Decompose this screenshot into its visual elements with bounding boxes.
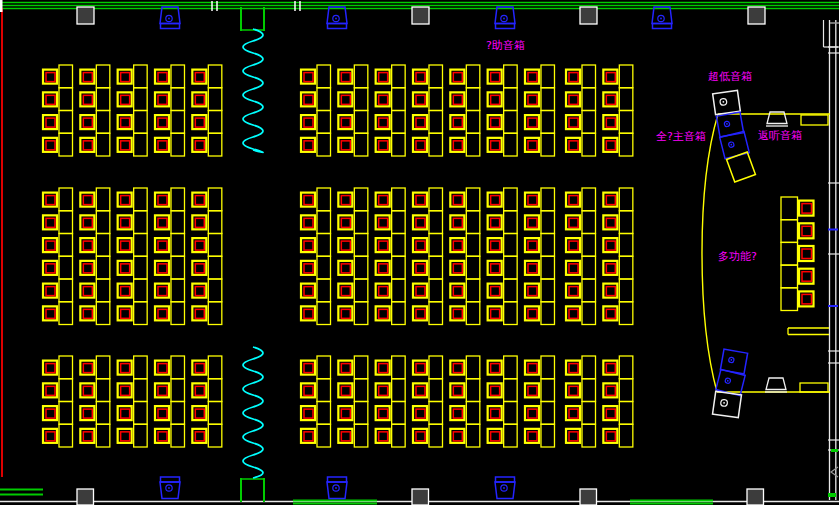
chair-seat (569, 386, 578, 395)
chair-seat (491, 241, 500, 250)
desk (171, 302, 185, 325)
wall-speaker-icon (160, 477, 180, 499)
chair-seat (46, 364, 55, 373)
desk (208, 188, 222, 211)
desk (208, 88, 222, 111)
chair-seat (528, 118, 537, 127)
chair-seat (416, 309, 425, 318)
chair-seat (379, 364, 388, 373)
speaker-driver-dot (503, 18, 505, 20)
desk (781, 265, 798, 288)
speaker-driver-dot (335, 487, 337, 489)
desk (96, 302, 110, 325)
desk (619, 65, 633, 88)
desk (619, 234, 633, 257)
desk (541, 234, 555, 257)
chair-seat (341, 141, 350, 150)
chair-seat (83, 309, 92, 318)
chair-seat (606, 95, 615, 104)
desk (582, 211, 596, 234)
chair-seat (83, 196, 92, 205)
chair-seat (379, 196, 388, 205)
chair-seat (491, 364, 500, 373)
desk (134, 211, 148, 234)
chair-seat (195, 264, 204, 273)
desk (541, 256, 555, 279)
chair-seat (416, 73, 425, 82)
desk (504, 133, 518, 156)
structural-column (747, 489, 764, 505)
desk (59, 88, 73, 111)
wall-speaker-icon (327, 477, 347, 499)
seat-block-top-center (301, 65, 554, 156)
chair-seat (83, 95, 92, 104)
chair-seat (528, 73, 537, 82)
chair-seat (491, 409, 500, 418)
chair-seat (416, 196, 425, 205)
chair-seat (121, 73, 130, 82)
desk (134, 65, 148, 88)
chair-seat (46, 264, 55, 273)
desk (171, 88, 185, 111)
chair-seat (158, 196, 167, 205)
chair-seat (606, 118, 615, 127)
desk (354, 234, 368, 257)
desk (541, 65, 555, 88)
chair-seat (416, 218, 425, 227)
seat-block-top-right (566, 65, 633, 156)
chair-seat (453, 264, 462, 273)
chair-seat (453, 386, 462, 395)
chair-seat (121, 264, 130, 273)
desk (134, 133, 148, 156)
desk (392, 188, 406, 211)
desk (392, 356, 406, 379)
chair-seat (83, 264, 92, 273)
desk (134, 379, 148, 402)
desk (59, 256, 73, 279)
desk (781, 220, 798, 243)
desk (96, 234, 110, 257)
desk (541, 402, 555, 425)
chair-seat (304, 409, 313, 418)
seat-block-bottom-left (43, 356, 222, 447)
desk (354, 88, 368, 111)
main-speaker-icon-driver-dot (730, 144, 732, 146)
desk (429, 256, 443, 279)
desk (619, 356, 633, 379)
chair-seat (341, 287, 350, 296)
chair-seat (453, 309, 462, 318)
desk (466, 379, 480, 402)
spring-symbol-bottom (243, 347, 263, 478)
desk (582, 356, 596, 379)
desk (171, 256, 185, 279)
desk (466, 234, 480, 257)
desk (541, 356, 555, 379)
chair-seat (121, 118, 130, 127)
chair-seat (416, 409, 425, 418)
desk (392, 234, 406, 257)
chair-seat (528, 287, 537, 296)
desk (392, 379, 406, 402)
chair-seat (379, 309, 388, 318)
chair-seat (83, 386, 92, 395)
chair-seat (528, 141, 537, 150)
desk (317, 211, 331, 234)
desk (171, 234, 185, 257)
speaker-driver-dot (660, 18, 662, 20)
chair-seat (83, 364, 92, 373)
desk (208, 256, 222, 279)
desk (134, 356, 148, 379)
chair-seat (606, 409, 615, 418)
chair-seat (158, 241, 167, 250)
desk (392, 424, 406, 447)
desk (429, 188, 443, 211)
desk (392, 402, 406, 425)
chair-seat (379, 386, 388, 395)
desk (354, 188, 368, 211)
chair-seat (379, 95, 388, 104)
desk (619, 188, 633, 211)
desk (134, 234, 148, 257)
chair-seat (46, 309, 55, 318)
chair-seat (606, 309, 615, 318)
desk (504, 302, 518, 325)
desk (582, 188, 596, 211)
desk (208, 111, 222, 134)
chair-seat (121, 95, 130, 104)
chair-seat (304, 264, 313, 273)
desk (171, 424, 185, 447)
chair-seat (158, 95, 167, 104)
desk (619, 256, 633, 279)
desk (466, 88, 480, 111)
chair-seat (569, 218, 578, 227)
desk (619, 211, 633, 234)
desk (466, 402, 480, 425)
desk (134, 402, 148, 425)
desk (504, 65, 518, 88)
speaker-cluster-bottom (713, 349, 787, 418)
desk (466, 111, 480, 134)
desk (392, 111, 406, 134)
desk (134, 188, 148, 211)
chair-seat (304, 364, 313, 373)
desk (541, 188, 555, 211)
chair-seat (83, 118, 92, 127)
label-multi-function: 多功能? (718, 251, 757, 263)
desk (582, 302, 596, 325)
chair-seat (195, 196, 204, 205)
chair-seat (341, 241, 350, 250)
chair-seat (195, 241, 204, 250)
desk (96, 424, 110, 447)
desk (208, 402, 222, 425)
chair-seat (304, 432, 313, 441)
desk (541, 111, 555, 134)
seat-block-mid-left (43, 188, 222, 325)
speaker-driver-dot (335, 18, 337, 20)
chair-seat (121, 218, 130, 227)
chair-seat (121, 241, 130, 250)
chair-seat (416, 386, 425, 395)
desk (59, 424, 73, 447)
desk (392, 279, 406, 302)
chair-seat (606, 364, 615, 373)
desk (619, 279, 633, 302)
desk (96, 65, 110, 88)
subwoofer-icon-driver-dot (723, 402, 725, 404)
chair-seat (341, 95, 350, 104)
label-main-speaker: 全?主音箱 (656, 131, 706, 143)
desk (208, 424, 222, 447)
desk (354, 65, 368, 88)
chair-seat (46, 118, 55, 127)
desk (171, 279, 185, 302)
desk (582, 402, 596, 425)
desk (171, 356, 185, 379)
door-swing-arrow-icon (831, 467, 838, 477)
chair-seat (606, 218, 615, 227)
right-wall (824, 20, 839, 500)
desk (541, 424, 555, 447)
desk (429, 234, 443, 257)
chair-seat (46, 196, 55, 205)
chair-seat (569, 364, 578, 373)
desk (96, 88, 110, 111)
chair-seat (83, 409, 92, 418)
desk (59, 211, 73, 234)
chair-seat (379, 241, 388, 250)
desk (582, 379, 596, 402)
monitor-speaker-icon (766, 378, 786, 390)
desk (354, 379, 368, 402)
desk (582, 256, 596, 279)
desk (429, 279, 443, 302)
chair-seat (83, 287, 92, 296)
chair-seat (491, 218, 500, 227)
chair-seat (195, 73, 204, 82)
chair-seat (195, 287, 204, 296)
desk (504, 402, 518, 425)
chair-seat (528, 364, 537, 373)
speaker-base (496, 24, 515, 29)
desk (541, 279, 555, 302)
wall-speaker-icon (327, 7, 347, 29)
chair-seat (491, 264, 500, 273)
desk (59, 402, 73, 425)
desk (96, 133, 110, 156)
structural-column (412, 489, 429, 505)
chair-seat (569, 309, 578, 318)
desk (582, 111, 596, 134)
chair-seat (341, 309, 350, 318)
desk (466, 133, 480, 156)
chair-seat (606, 287, 615, 296)
chair-seat (416, 287, 425, 296)
chair-seat (802, 249, 812, 259)
desk (96, 256, 110, 279)
chair-seat (341, 73, 350, 82)
desk (171, 211, 185, 234)
desk (466, 279, 480, 302)
chair-seat (528, 218, 537, 227)
wall-speaker-icon (652, 7, 672, 29)
chair-seat (379, 287, 388, 296)
desk (541, 302, 555, 325)
desk (504, 188, 518, 211)
desk (504, 88, 518, 111)
chair-seat (195, 409, 204, 418)
desk (582, 133, 596, 156)
chair-seat (802, 294, 812, 304)
chair-seat (453, 432, 462, 441)
wall-speaker-icon (495, 7, 515, 29)
chair-seat (453, 95, 462, 104)
seat-block-mid-center (301, 188, 554, 325)
desk (466, 65, 480, 88)
main-speaker-icon-driver-dot (727, 380, 729, 382)
chair-seat (46, 409, 55, 418)
desk (392, 256, 406, 279)
chair-seat (341, 118, 350, 127)
chair-seat (606, 386, 615, 395)
desk (171, 379, 185, 402)
chair-seat (158, 386, 167, 395)
desk (466, 256, 480, 279)
desk (208, 133, 222, 156)
chair-seat (569, 432, 578, 441)
chair-seat (453, 218, 462, 227)
structural-column (580, 7, 597, 24)
desk (429, 356, 443, 379)
chair-seat (304, 196, 313, 205)
desk (59, 111, 73, 134)
chair-seat (341, 264, 350, 273)
chair-seat (379, 432, 388, 441)
desk (504, 279, 518, 302)
left-wall (0, 0, 3, 477)
desk (429, 133, 443, 156)
chair-seat (46, 95, 55, 104)
chair-seat (121, 432, 130, 441)
desk (504, 256, 518, 279)
chair-seat (802, 272, 812, 282)
desk (504, 111, 518, 134)
chair-seat (528, 196, 537, 205)
desk (59, 188, 73, 211)
desk (392, 88, 406, 111)
desk (317, 111, 331, 134)
desk (504, 379, 518, 402)
desk (429, 88, 443, 111)
chair-seat (341, 196, 350, 205)
desk (96, 356, 110, 379)
chair-seat (569, 287, 578, 296)
structural-column (77, 489, 94, 505)
desk (208, 279, 222, 302)
chair-seat (416, 364, 425, 373)
desk (171, 133, 185, 156)
chair-seat (121, 287, 130, 296)
chair-seat (341, 432, 350, 441)
chair-seat (569, 95, 578, 104)
speaker-driver-dot (168, 18, 170, 20)
chair-seat (195, 218, 204, 227)
desk (354, 256, 368, 279)
chair-seat (569, 196, 578, 205)
desk (781, 197, 798, 220)
desk (619, 302, 633, 325)
chair-seat (304, 73, 313, 82)
desk (59, 356, 73, 379)
chair-seat (195, 309, 204, 318)
chair-seat (304, 218, 313, 227)
chair-seat (83, 73, 92, 82)
chair-seat (569, 73, 578, 82)
chair-seat (606, 141, 615, 150)
desk (96, 379, 110, 402)
stage-step (801, 115, 828, 125)
chair-seat (121, 364, 130, 373)
desk (208, 302, 222, 325)
desk (429, 65, 443, 88)
desk (504, 234, 518, 257)
chair-seat (195, 432, 204, 441)
chair-seat (195, 141, 204, 150)
desk (466, 302, 480, 325)
desk (317, 402, 331, 425)
chair-seat (304, 141, 313, 150)
chair-seat (304, 386, 313, 395)
desk (134, 279, 148, 302)
cad-viewport[interactable]: ?助音箱 超低音箱 全?主音箱 返听音箱 多功能? (0, 0, 839, 505)
desk (392, 65, 406, 88)
desk (208, 356, 222, 379)
chair-seat (46, 241, 55, 250)
chair-seat (158, 118, 167, 127)
chair-seat (195, 118, 204, 127)
desk (134, 111, 148, 134)
chair-seat (528, 241, 537, 250)
desk (504, 211, 518, 234)
chair-seat (491, 386, 500, 395)
chair-seat (121, 141, 130, 150)
desk (317, 188, 331, 211)
desk (134, 424, 148, 447)
desk (582, 65, 596, 88)
chair-seat (802, 226, 812, 236)
chair-seat (606, 432, 615, 441)
chair-seat (46, 73, 55, 82)
chair-seat (304, 241, 313, 250)
desk (59, 279, 73, 302)
desk (504, 356, 518, 379)
desk (171, 65, 185, 88)
chair-seat (606, 264, 615, 273)
desk (541, 133, 555, 156)
chair-seat (379, 264, 388, 273)
chair-seat (46, 386, 55, 395)
desk (781, 242, 798, 265)
wall-speaker-icon (160, 7, 180, 29)
chair-seat (528, 264, 537, 273)
desk (354, 302, 368, 325)
chair-seat (158, 264, 167, 273)
chair-seat (453, 196, 462, 205)
